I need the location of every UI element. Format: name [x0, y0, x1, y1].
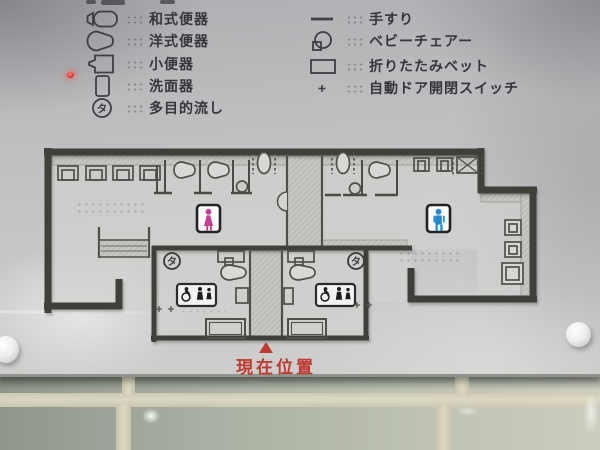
- auto-door-switch-icon: [306, 77, 340, 99]
- cropped-title-fragment: [86, 0, 96, 4]
- legend-label: 和式便器: [149, 9, 209, 29]
- baby-chair-icon: [306, 30, 340, 52]
- legend-row-western-toilet: 洋式便器: [86, 30, 209, 52]
- womens-squat-toilet-symbol: [253, 153, 275, 175]
- sign-panel: 和式便器 洋式便器 小便器 洗面器 タ: [0, 0, 600, 377]
- folding-bed-icon: [306, 55, 340, 77]
- braille-leader-dots: [126, 104, 143, 113]
- accessible-room-walls: [151, 246, 412, 342]
- womens-western-toilet-symbols: [174, 162, 229, 178]
- handrail-symbol: [453, 157, 482, 176]
- legend-row-auto-door-switch: 自動ドア開閉スイッチ: [306, 77, 519, 99]
- braille-leader-dots: [126, 82, 143, 91]
- man-pictogram: [427, 205, 450, 232]
- mens-squat-toilet-symbol: [332, 153, 354, 175]
- legend-label: 多目的流し: [149, 98, 224, 118]
- legend-row-squat-toilet: 和式便器: [86, 8, 209, 30]
- legend-label: ベビーチェアー: [369, 31, 473, 51]
- legend-row-folding-bed: 折りたたみベット: [306, 55, 489, 77]
- tile-highlight: [583, 392, 599, 434]
- braille-leader-dots: [346, 62, 363, 71]
- urinal-icon: [86, 53, 120, 75]
- braille-leader-dots: [346, 15, 363, 24]
- braille-leader-dots: [126, 37, 143, 46]
- mens-western-toilet-symbol: [369, 162, 390, 178]
- accessible-toilet-symbol: [290, 265, 315, 280]
- womens-toilet-stalls: [154, 160, 252, 194]
- braille-leader-dots: [126, 15, 143, 24]
- western-toilet-icon: [86, 30, 120, 52]
- accessible-room-right: タ: [284, 251, 372, 338]
- womens-bench-counter: [99, 227, 149, 258]
- legend-row-urinal: 小便器: [86, 53, 194, 75]
- braille-dots: [398, 250, 462, 265]
- legend-row-washbasin: 洗面器: [86, 75, 194, 97]
- legend-row-multipurpose-sink: タ 多目的流し: [86, 97, 224, 119]
- accessible-toilet-symbol: [221, 265, 246, 280]
- tile-highlight: [455, 406, 481, 416]
- handrail-icon: [306, 8, 340, 30]
- braille-leader-dots: [346, 37, 363, 46]
- service-shaft-bottom: [250, 251, 282, 336]
- legend-label: 小便器: [149, 54, 194, 74]
- multipurpose-sink-symbol-left: タ: [164, 253, 180, 269]
- wall-hatch-bands: [52, 156, 533, 296]
- multipurpose-sink-symbol-right: タ: [348, 253, 364, 269]
- cropped-title-fragment: [160, 0, 175, 4]
- tile-grout-vertical: [116, 405, 131, 450]
- braille-leader-dots: [346, 84, 363, 93]
- legend-label: 自動ドア開閉スイッチ: [369, 78, 519, 98]
- squat-toilet-icon: [86, 8, 120, 30]
- legend-row-baby-chair: ベビーチェアー: [306, 30, 473, 52]
- current-location-label: 現在位置: [236, 353, 316, 378]
- legend-label: 折りたたみベット: [369, 56, 489, 76]
- wheelchair-adult-child-pictogram: [177, 284, 216, 306]
- mounting-bolt: [566, 322, 591, 347]
- mens-toilet-stalls: [325, 160, 397, 196]
- mens-urinal-row: [414, 157, 482, 176]
- braille-leader-dots: [126, 60, 143, 69]
- door-arc: [278, 192, 288, 211]
- womens-washbasin-row: [58, 166, 160, 180]
- svg-text:タ: タ: [167, 256, 177, 268]
- auto-door-switch-symbol: [354, 302, 372, 308]
- floor-area: [48, 152, 533, 338]
- restroom-map-sign-photo: 和式便器 洋式便器 小便器 洗面器 タ: [0, 0, 600, 450]
- folding-bed-symbol: [206, 319, 245, 338]
- wheelchair-adult-child-pictogram: [316, 284, 355, 306]
- service-shaft-top: [287, 156, 322, 246]
- tile-grout-horizontal: [0, 393, 600, 407]
- folding-bed-symbol: [288, 319, 326, 338]
- svg-text:タ: タ: [351, 256, 361, 268]
- tile-grout-vertical: [436, 405, 451, 450]
- mens-baby-chair-symbol: [350, 183, 361, 194]
- multipurpose-sink-marker: タ: [97, 103, 108, 115]
- woman-pictogram: [197, 205, 220, 232]
- washbasin-icon: [86, 75, 120, 97]
- legend-label: 手すり: [369, 9, 414, 29]
- tile-highlight: [142, 408, 160, 424]
- womens-baby-chair-symbol: [237, 181, 248, 192]
- multipurpose-sink-icon: タ: [86, 97, 120, 119]
- legend-row-handrail: 手すり: [306, 8, 414, 30]
- current-location-arrow: [259, 342, 273, 353]
- legend-label: 洋式便器: [149, 31, 209, 51]
- cropped-title-fragment: [101, 0, 125, 5]
- accessible-room-left: タ: [156, 251, 248, 338]
- legend-label: 洗面器: [149, 76, 194, 96]
- panel-reflection: [0, 310, 210, 314]
- red-led-dot: [67, 72, 74, 78]
- braille-dots: [76, 201, 148, 216]
- mens-right-wall-fixtures: [502, 220, 523, 284]
- handrail-symbol: [332, 153, 354, 174]
- handrail-symbol: [253, 153, 275, 174]
- tile-wall: [0, 366, 600, 450]
- braille-dots: [180, 308, 226, 316]
- outer-walls: [44, 148, 537, 313]
